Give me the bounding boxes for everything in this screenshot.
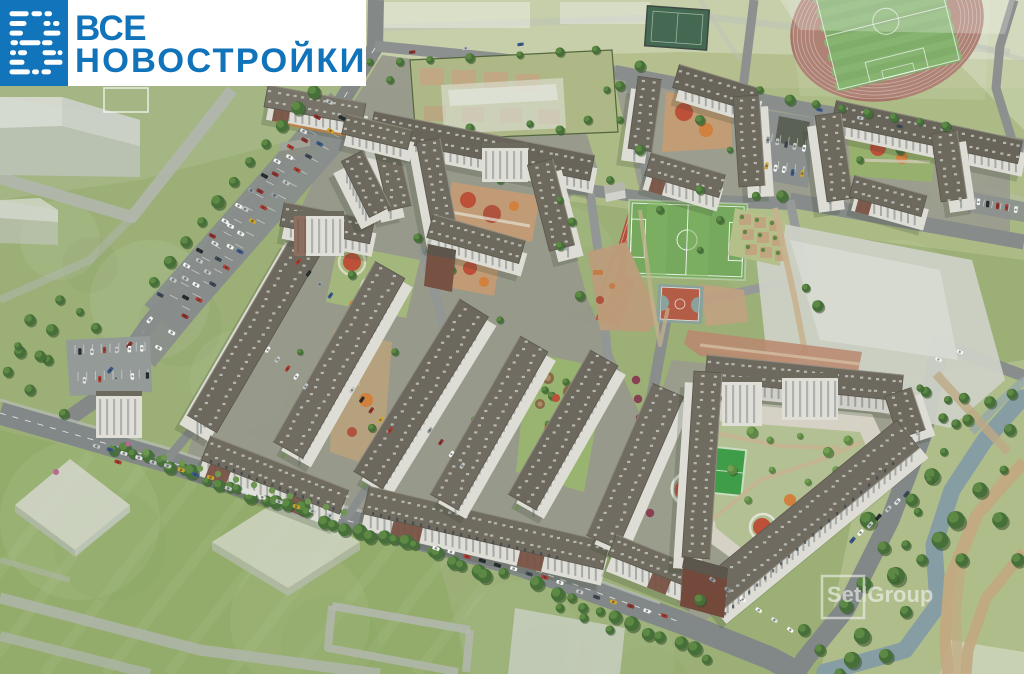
- svg-text:НОВОСТРОЙКИ: НОВОСТРОЙКИ: [75, 40, 363, 80]
- svg-text:SetlGroup: SetlGroup: [827, 582, 933, 607]
